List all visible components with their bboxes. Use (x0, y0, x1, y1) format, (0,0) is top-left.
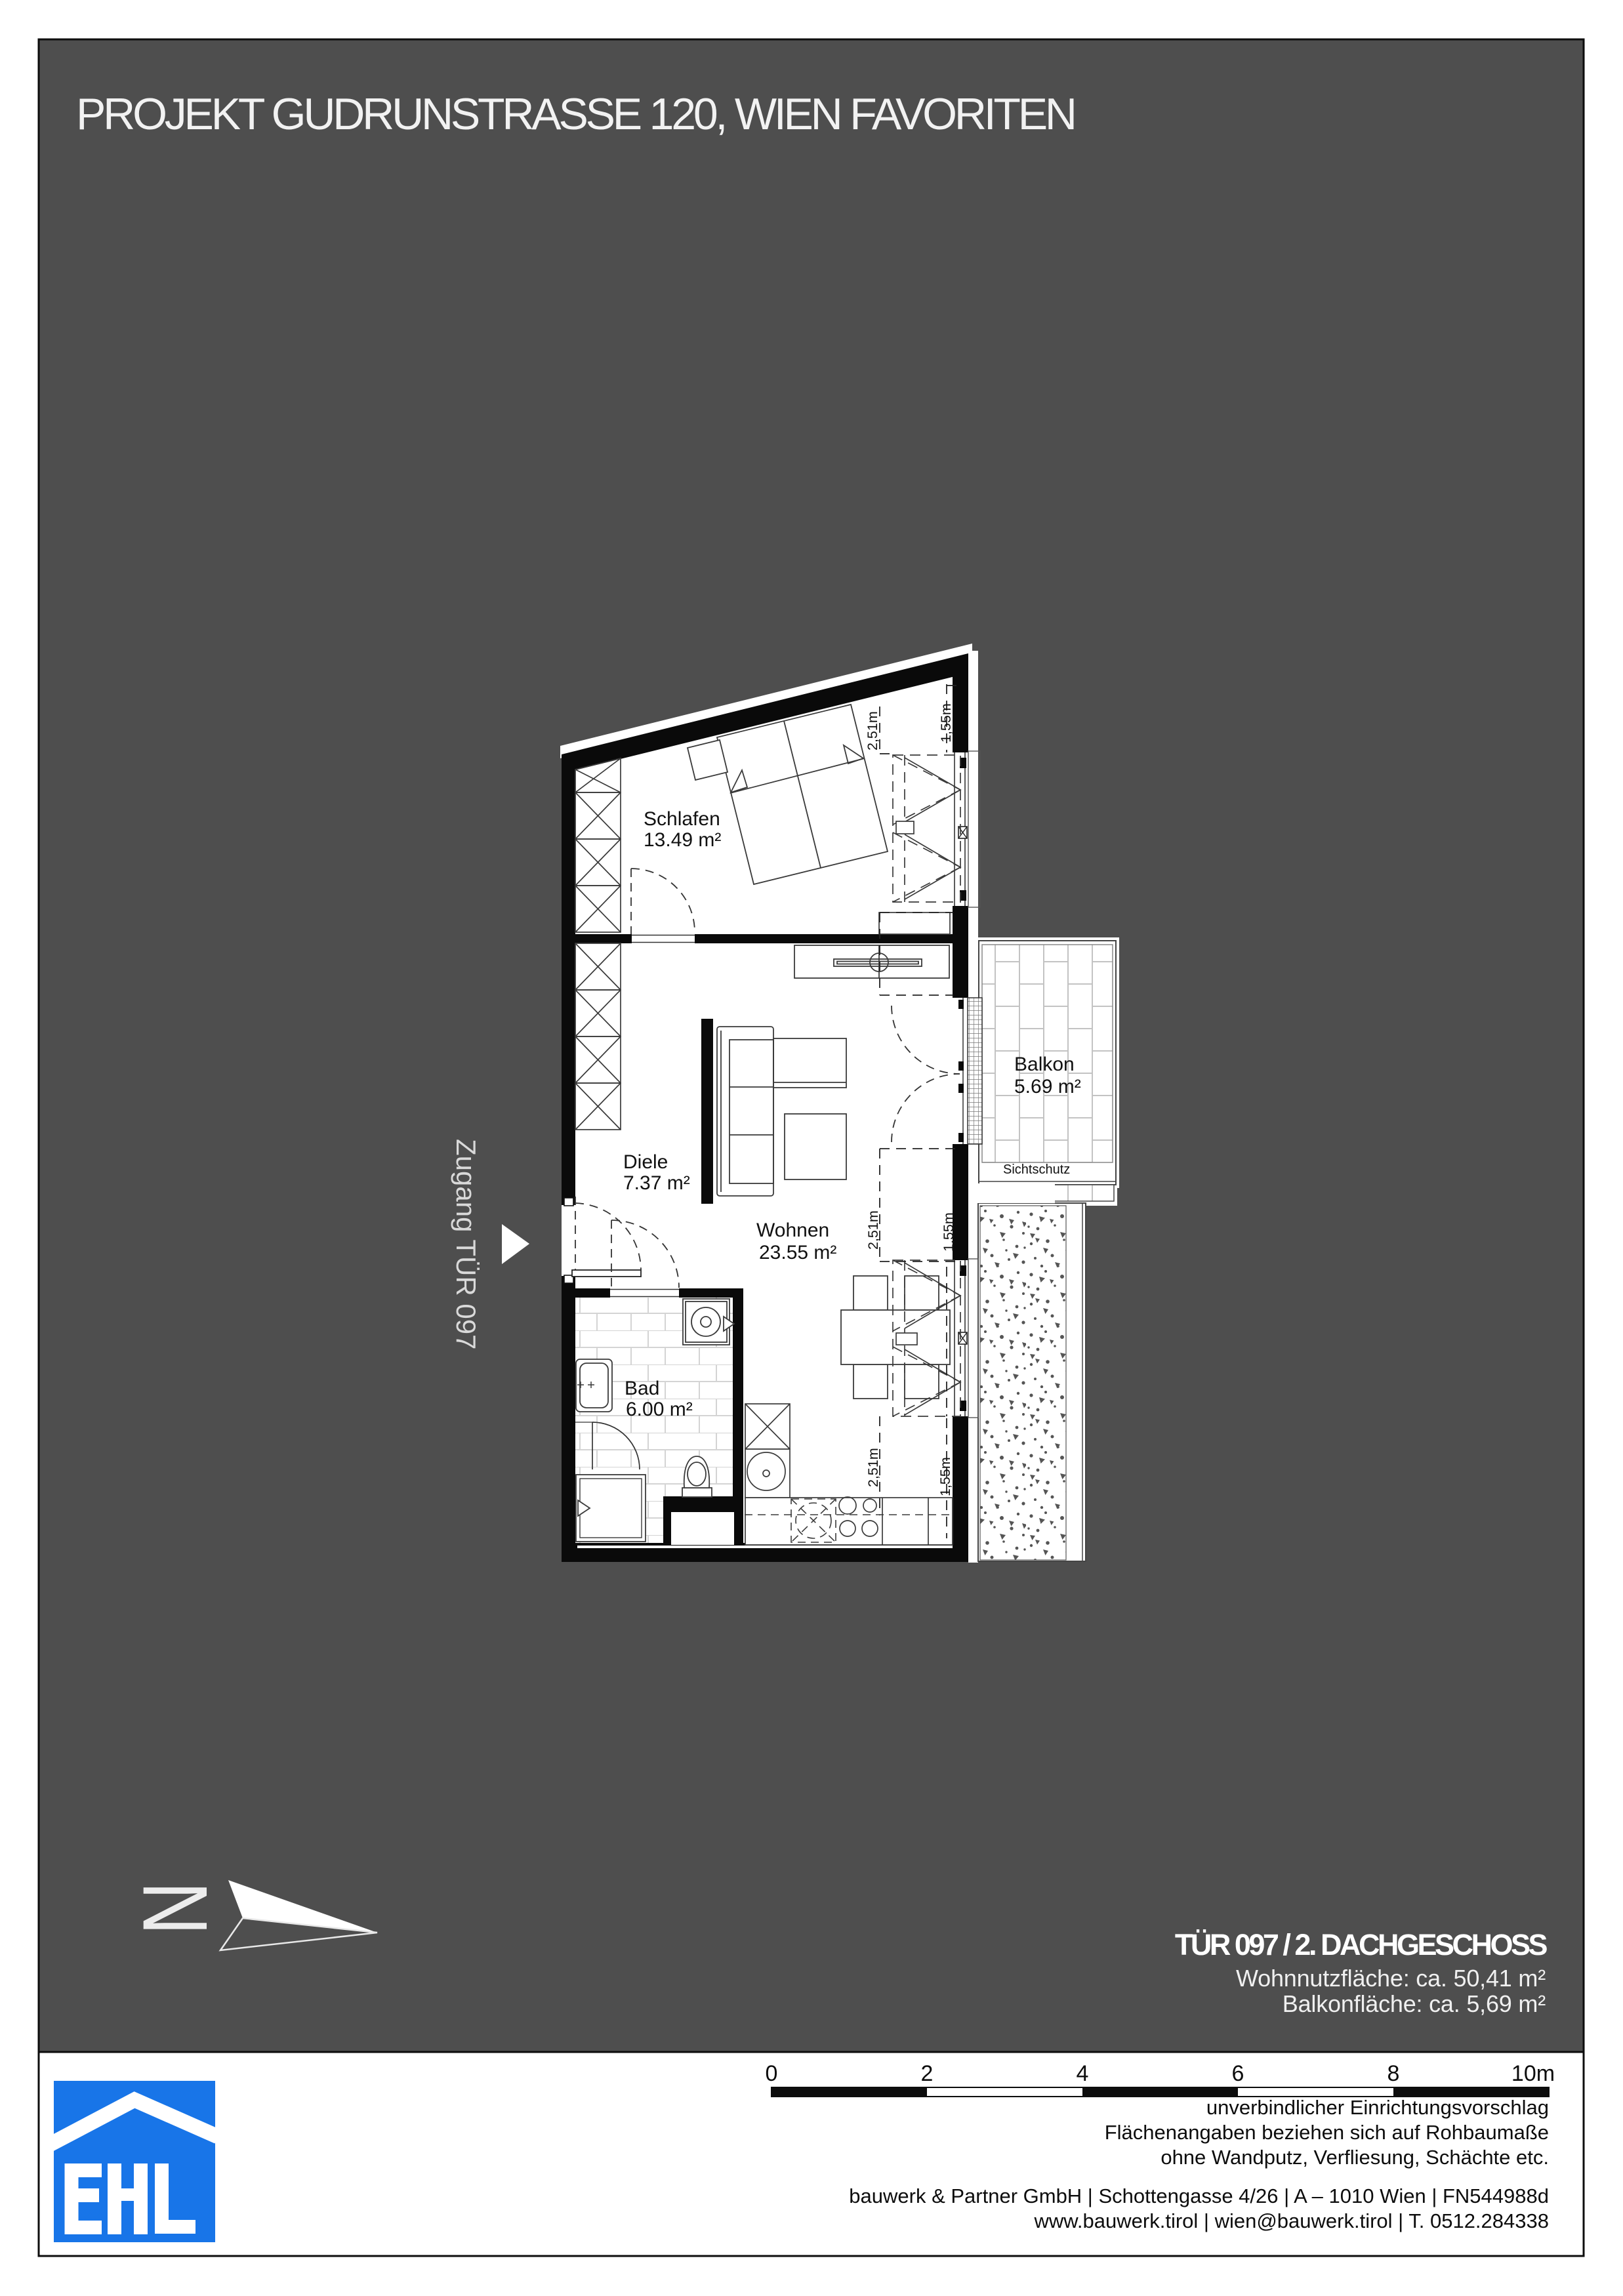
svg-text:ohne Wandputz, Verfliesung, Sc: ohne Wandputz, Verfliesung, Schächte etc… (1161, 2146, 1549, 2169)
svg-text:6.00 m²: 6.00 m² (626, 1399, 693, 1420)
svg-text:Schlafen: Schlafen (644, 808, 720, 830)
svg-text:0: 0 (766, 2061, 778, 2086)
svg-text:TÜR 097 / 2. DACHGESCHOSS: TÜR 097 / 2. DACHGESCHOSS (1175, 1928, 1548, 1961)
svg-text:Balkonfläche: ca. 5,69 m²: Balkonfläche: ca. 5,69 m² (1283, 1990, 1546, 2017)
svg-text:7.37 m²: 7.37 m² (623, 1172, 690, 1194)
svg-text:Bad: Bad (625, 1378, 659, 1399)
svg-text:1,55m: 1,55m (938, 703, 954, 743)
svg-text:Balkon: Balkon (1014, 1054, 1075, 1075)
svg-text:unverbindlicher Einrichtungsvo: unverbindlicher Einrichtungsvorschlag (1206, 2096, 1549, 2119)
svg-text:Diele: Diele (623, 1151, 668, 1173)
svg-text:10m: 10m (1511, 2061, 1555, 2086)
svg-text:Wohnnutzfläche: ca. 50,41 m²: Wohnnutzfläche: ca. 50,41 m² (1236, 1965, 1546, 1992)
svg-text:13.49 m²: 13.49 m² (644, 829, 721, 851)
svg-text:www.bauwerk.tirol | wien@bauwe: www.bauwerk.tirol | wien@bauwerk.tirol |… (1033, 2209, 1549, 2232)
svg-text:2,51m: 2,51m (865, 711, 880, 750)
svg-text:5.69 m²: 5.69 m² (1014, 1076, 1081, 1097)
svg-text:Flächenangaben beziehen sich a: Flächenangaben beziehen sich auf Rohbaum… (1105, 2121, 1549, 2144)
svg-text:PROJEKT GUDRUNSTRASSE 120, WIE: PROJEKT GUDRUNSTRASSE 120, WIEN FAVORITE… (76, 89, 1075, 139)
svg-text:bauwerk & Partner GmbH | Schot: bauwerk & Partner GmbH | Schottengasse 4… (849, 2184, 1549, 2207)
svg-text:2,51m: 2,51m (865, 1210, 881, 1250)
svg-text:Wohnen: Wohnen (756, 1220, 829, 1241)
svg-text:6: 6 (1232, 2061, 1244, 2086)
svg-text:4: 4 (1077, 2061, 1089, 2086)
svg-text:1,55m: 1,55m (937, 1457, 953, 1496)
svg-text:8: 8 (1387, 2061, 1400, 2086)
svg-text:Sichtschutz: Sichtschutz (1003, 1162, 1070, 1177)
svg-text:2: 2 (921, 2061, 934, 2086)
svg-text:N: N (123, 1881, 226, 1935)
svg-text:2,51m: 2,51m (865, 1448, 881, 1487)
svg-text:23.55 m²: 23.55 m² (759, 1242, 836, 1263)
svg-text:1,55m: 1,55m (941, 1212, 956, 1252)
svg-text:Zugang TÜR 097: Zugang TÜR 097 (451, 1139, 482, 1349)
